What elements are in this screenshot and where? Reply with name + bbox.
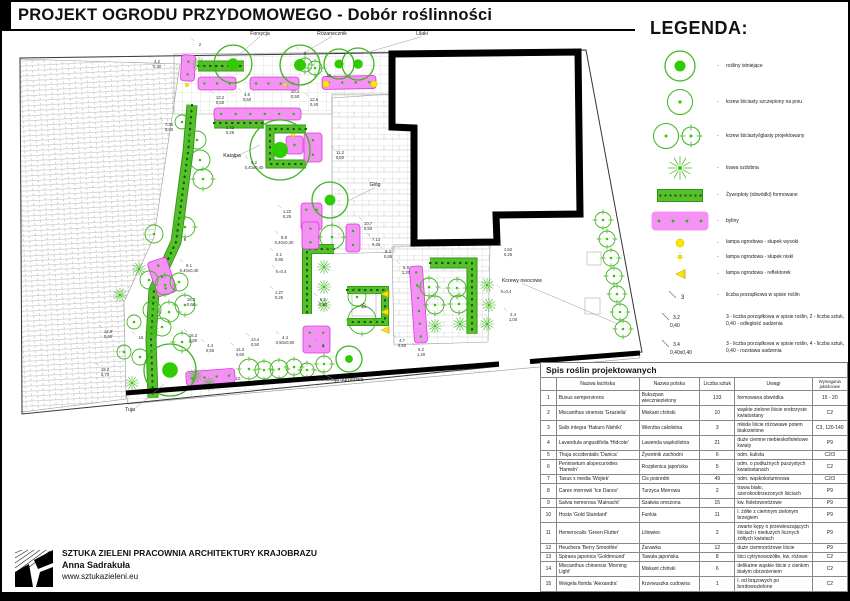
dim-tick [132, 331, 135, 334]
legend-item-label: lampa ogrodowa - reflektorek [726, 270, 791, 276]
cell-pol: Lawenda wąskolistna [639, 436, 699, 451]
plant-center-dot [622, 328, 625, 331]
dim-label: 0,40 [310, 102, 319, 107]
plant-center-dot [293, 366, 296, 369]
grass-center-dot [488, 304, 491, 307]
plant-center-dot [610, 257, 613, 260]
dim-label: 6 [184, 237, 187, 242]
cell-qty: 8 [700, 553, 735, 562]
table-row: 1Buxus sempervirensBukszpan wiecznieziel… [541, 391, 848, 406]
bed-dot [216, 82, 218, 84]
cell-req: C2 [812, 406, 847, 421]
cell-req: C2/3 [812, 451, 847, 460]
bed-dot [249, 113, 251, 115]
grass-center-dot [486, 284, 489, 287]
house-outline [392, 52, 580, 243]
dim-label: 1,20 [402, 270, 411, 275]
svg-text:3.4: 3.4 [673, 342, 680, 348]
cell-pol: Tawuła japońska [639, 553, 699, 562]
cell-lat: Salvia nemorosa 'Mainacht' [556, 499, 639, 508]
label-leader [522, 284, 618, 325]
cell-req: C2 [812, 460, 847, 475]
cell-lat: Buxus sempervirens [556, 391, 639, 406]
s-area-label: S [362, 303, 367, 310]
cell-num: 5 [541, 451, 557, 460]
dim-label: 0,60 [236, 352, 245, 357]
legend-dash: - [715, 99, 721, 105]
dim-label: 0,50x0,50 [276, 340, 295, 345]
cell-lat: Lavandula angustifolia 'Hidcote' [556, 436, 639, 451]
legend-panel: LEGENDA: -rośliny istniejące-krzew liści… [650, 18, 848, 361]
plant-center-dot [602, 219, 605, 222]
plant-center-dot [161, 326, 164, 329]
dim-tick [272, 265, 275, 268]
legend-item-label: krzew liściasty szczepiony na pniu [726, 99, 802, 105]
dim-tick [278, 205, 281, 208]
dim-label: 0,50 [336, 155, 345, 160]
hedge-symbol [650, 189, 710, 202]
boundary-gap [499, 362, 530, 364]
dim-label: 0,40x0,40 [245, 165, 264, 170]
cell-lat: Hosta 'Gold Standard' [556, 508, 639, 523]
dim-label: 0,50 [216, 100, 225, 105]
cell-uwagi: delikatne wąskie liście z cienkim białym… [735, 562, 812, 577]
bed-dot [312, 139, 314, 141]
grass-center-dot [434, 325, 437, 328]
dim-label: 1,20 [417, 352, 426, 357]
cell-qty: 6 [700, 562, 735, 577]
plant-center-dot [325, 195, 336, 206]
legend-item-lamp-high: -lampa ogrodowa - słupek wysoki [650, 235, 848, 250]
paved-square [585, 298, 600, 314]
plant-center-dot [616, 293, 619, 296]
legend-item-label: rośliny istniejące [726, 63, 763, 69]
bed-dot [203, 82, 205, 84]
cell-qty: 6 [700, 451, 735, 460]
svg-text:3.2: 3.2 [673, 315, 680, 321]
cell-uwagi: formowana obwódka [735, 391, 812, 406]
table-row: 12Heuchera 'Berry Smoothie'Żurawka12duże… [541, 544, 848, 553]
perennial-bed [302, 222, 319, 249]
grass-center-dot [323, 266, 326, 269]
cell-num: 4 [541, 436, 557, 451]
dim-tick [270, 248, 273, 251]
dim-label: 16 [327, 73, 332, 78]
dim-tick [180, 259, 183, 262]
dim-tick [245, 156, 248, 159]
plant-center-dot [168, 311, 171, 314]
cell-uwagi: wąskie zielone liście srebrzyste kwiatos… [735, 406, 812, 421]
dim-tick [314, 293, 317, 296]
cell-qty: 1 [700, 577, 735, 592]
cell-uwagi: duże ciemnoróżowe liście [735, 544, 812, 553]
cell-pol: Żurawka [639, 544, 699, 553]
cell-req: C3, 120-140 [812, 421, 847, 436]
cell-req: P9 [812, 523, 847, 544]
cell-req: 15 - 20 [812, 391, 847, 406]
table-row: 8Carex morrowii 'Ice Dance'Turzyca Morro… [541, 484, 848, 499]
dim-label: 0,60 [187, 302, 196, 307]
designer-name: Anna Sadrakuła [62, 560, 317, 570]
cell-qty: 12 [700, 544, 735, 553]
plant-center-dot [196, 139, 199, 142]
bed-dot [267, 82, 269, 84]
dim-label: 1,00 [509, 317, 518, 322]
plant-label: Głóg [370, 182, 381, 188]
cell-pol: Liliowiec [639, 523, 699, 544]
cell-lat: Thuja occidentalis 'Danica' [556, 451, 639, 460]
plant-center-dot [323, 363, 326, 366]
dim-label: 16 [139, 335, 144, 340]
plant-center-dot [164, 284, 167, 287]
dim-label: 10 [236, 376, 241, 381]
bed-dot [352, 230, 354, 232]
plant-center-dot [428, 286, 431, 289]
plant-center-dot [139, 356, 142, 359]
dim-tick [270, 286, 273, 289]
plant-table-body: 1Buxus sempervirensBukszpan wiecznieziel… [541, 391, 848, 601]
legend-item-lamp-low: -lampa ogrodowa - słupek niski [650, 250, 848, 264]
plant-center-dot [613, 275, 616, 278]
website-link[interactable]: www.sztukazieleni.eu [62, 572, 317, 581]
lamp-high [371, 81, 377, 87]
cell-req: C2 [812, 562, 847, 577]
plant-center-dot [434, 304, 437, 307]
dim-label: 0,70 [101, 372, 110, 377]
ref-count-symbol: 3.20,40 [650, 311, 710, 331]
table-row: 15Weigela florida 'Alexandra'Krzewuszka … [541, 577, 848, 592]
bed-dot [279, 82, 281, 84]
legend-item-perennials: -byliny [650, 207, 848, 235]
plant-label: Tuja [125, 407, 135, 413]
cell-uwagi: zwarte kępy o przewieszających liściach … [735, 523, 812, 544]
cell-qty: 49 [700, 475, 735, 484]
dim-tick [201, 339, 204, 342]
legend-item-label: krzew liściasty/iglasty projektowany [726, 133, 804, 139]
dim-tick [497, 285, 500, 288]
existing-plant-symbol [650, 48, 710, 84]
dim-label: 0,30 [153, 64, 162, 69]
dim-label: 0,50 [398, 343, 407, 348]
plant-center-dot [184, 226, 187, 229]
cell-lat: Hemerocalis 'Green Flutter' [556, 523, 639, 544]
legend-item-label: byliny [726, 218, 739, 224]
bed-dot [264, 113, 266, 115]
bed-dot [309, 228, 311, 230]
bed-dot [220, 113, 222, 115]
legend-item-existing-plant: -rośliny istniejące [650, 47, 848, 85]
cell-req: P9 [812, 508, 847, 523]
cell-lat: Pennisetum alopecuroides 'Hameln' [556, 460, 639, 475]
legend-item-lamp-spot: -lampa ogrodowa - reflektorek [650, 264, 848, 283]
cell-pol: Rozplenica japońska [639, 460, 699, 475]
plant-center-dot [162, 362, 178, 378]
lamp-high-symbol [650, 237, 710, 249]
legend-item-ref-spacing: 3.40,40x0,40-3 - liczba porządkowa w spi… [650, 334, 848, 361]
table-row: 4Lavandula angustifolia 'Hidcote'Lawenda… [541, 436, 848, 451]
cell-pol: Funkia [639, 508, 699, 523]
plant-center-dot [361, 319, 364, 322]
dim-tick [246, 333, 249, 336]
cell-num: 12 [541, 544, 557, 553]
cell-uwagi: liści cytrynowożółte, kw. różowe [735, 553, 812, 562]
cell-uwagi: odm. kulista [735, 451, 812, 460]
cell-uwagi: l. od brązowych po bordowozielone [735, 577, 812, 592]
paved-square [587, 252, 601, 265]
label-leader [240, 37, 260, 55]
perennial-bed [346, 224, 360, 252]
plant-table: Nazwa łacińskaNazwa polskaLiczba sztukUw… [540, 377, 848, 601]
dim-label: 0,90 [275, 257, 284, 262]
bottom-border-bar [2, 592, 848, 599]
bed-dot [309, 345, 311, 347]
dim-tick [276, 331, 279, 334]
cell-num: 13 [541, 553, 557, 562]
plant-center-dot [181, 341, 184, 344]
dim-label: 0,50 [364, 226, 373, 231]
cell-req: P9 [812, 499, 847, 508]
plant-center-dot [353, 59, 363, 69]
plant-label: Krzewy owocowe [502, 278, 542, 284]
perennial-bed [214, 108, 301, 120]
legend-dash: - [715, 165, 721, 171]
cell-pol: Krzewuszka cudowna [639, 577, 699, 592]
dim-label: 0,25 [275, 295, 284, 300]
plant-center-dot [331, 236, 334, 239]
bed-dot [305, 209, 307, 211]
perennials-symbol [650, 211, 710, 231]
plant-table-head: Nazwa łacińskaNazwa polskaLiczba sztukUw… [541, 378, 848, 391]
grafted-shrub-symbol [650, 87, 710, 117]
ref-number-symbol: 3 [650, 289, 710, 302]
plant-center-dot [153, 233, 156, 236]
bed-dot [278, 113, 280, 115]
legend-item-label: 3 - liczba porządkowa w spisie roślin, 2… [726, 314, 848, 327]
dim-tick [231, 343, 234, 346]
legend-item-proposed-shrub: -krzew liściasty/iglasty projektowany [650, 119, 848, 153]
grass-center-dot [119, 294, 122, 297]
cell-req: C2 [812, 553, 847, 562]
lamp-low [291, 133, 295, 137]
cell-num: 10 [541, 508, 557, 523]
plant-center-dot [606, 238, 609, 241]
bed-dot [255, 82, 257, 84]
plant-center-dot [199, 159, 202, 162]
legend-item-label: 3 - liczba porządkowa w spisie roślin, 4… [726, 341, 848, 354]
cell-num: 1 [541, 391, 557, 406]
cell-num: 15 [541, 577, 557, 592]
dim-label: 0,40 [372, 242, 381, 247]
plant-center-dot [345, 355, 353, 363]
cell-pol: Miskant chiński [639, 406, 699, 421]
cell-num: 11 [541, 523, 557, 544]
plant-label: Różanecznik [317, 31, 347, 37]
title-accent-bar [2, 2, 11, 29]
column-header-0 [541, 378, 557, 391]
grass-center-dot [486, 323, 489, 326]
cell-req: P9 [812, 484, 847, 499]
legend-item-ref-number: 3-liczba porządkowa w spisie roślin [650, 283, 848, 307]
cell-qty: 2 [700, 523, 735, 544]
dim-label: 0,80 [319, 302, 328, 307]
table-row: 2Miscanthus sinensis 'Graziella'Miskant … [541, 406, 848, 421]
cell-pol: Cis pośredni [639, 475, 699, 484]
bed-dot [293, 113, 295, 115]
cell-pol: Turzyca Morrowa [639, 484, 699, 499]
dim-label: 0,85 [384, 254, 393, 259]
cell-num: 6 [541, 460, 557, 475]
cell-qty: 10 [700, 406, 735, 421]
legend-item-label: lampa ogrodowa - słupek niski [726, 254, 793, 260]
cell-num: 7 [541, 475, 557, 484]
bed-dot [293, 144, 295, 146]
plant-center-dot [123, 351, 126, 354]
cell-lat: Carex morrowii 'Ice Dance' [556, 484, 639, 499]
dim-tick [504, 308, 507, 311]
legend-items: -rośliny istniejące-krzew liściasty szcz… [650, 47, 848, 361]
dim-label: 0,60 [104, 334, 113, 339]
cell-num: 2 [541, 406, 557, 421]
lamp-low-symbol [650, 251, 710, 263]
table-row: 5Thuja occidentalis 'Danica'Żywotnik zac… [541, 451, 848, 460]
legend-item-ornamental-grass: -trawa ozdobna [650, 153, 848, 183]
dim-label: 0,50 [206, 348, 215, 353]
column-header-4: Uwagi [735, 378, 812, 391]
plant-center-dot [272, 142, 288, 158]
column-header-3: Liczba sztuk [700, 378, 735, 391]
svg-text:0,40x0,40: 0,40x0,40 [670, 350, 692, 356]
table-row: 13Spiraea japonica 'Goldmound'Tawuła jap… [541, 553, 848, 562]
cell-lat: Salix integra 'Hakuro Nishiki' [556, 421, 639, 436]
plant-center-dot [148, 279, 151, 282]
company-name: SZTUKA ZIELENI PRACOWNIA ARCHITEKTURY KR… [62, 548, 317, 558]
proposed-shrub-symbol [650, 121, 710, 151]
perennial-bed [180, 55, 195, 82]
legend-dash: - [715, 254, 721, 260]
table-row: 11Hemerocalis 'Green Flutter'Liliowiec2z… [541, 523, 848, 544]
table-header-row: Nazwa łacińskaNazwa polskaLiczba sztukUw… [541, 378, 848, 391]
bed-dot [352, 244, 354, 246]
cell-lat: Miscanthus chinensis 'Morning Light' [556, 562, 639, 577]
cell-uwagi: odm. wąskokolumnowa [735, 475, 812, 484]
dim-label: h=0,4 [501, 289, 512, 294]
plant-center-dot [181, 121, 184, 124]
perennial-bed [303, 326, 330, 353]
lamp-spot [381, 327, 388, 333]
cell-uwagi: młode liście różowawe potem białozielone [735, 421, 812, 436]
cell-num: 3 [541, 421, 557, 436]
plant-center-dot [356, 296, 359, 299]
page-title: PROJEKT OGRODU PRZYDOMOWEGO - Dobór rośl… [18, 6, 492, 25]
cell-lat: Weigela florida 'Alexandra' [556, 577, 639, 592]
cell-uwagi: trawa biało, szerokoobrzeżonych liściach [735, 484, 812, 499]
column-header-1: Nazwa łacińska [556, 378, 639, 391]
bed-dot [235, 113, 237, 115]
bed-dot [312, 154, 314, 156]
grass-center-dot [151, 331, 154, 334]
cell-qty: 11 [700, 508, 735, 523]
legend-item-label: trawa ozdobna [726, 165, 759, 171]
cell-lat: Spiraea japonica 'Goldmound' [556, 553, 639, 562]
dim-tick [275, 231, 278, 234]
dim-tick [296, 47, 299, 50]
plant-center-dot [458, 303, 461, 306]
plant-table-panel: Spis roślin projektowanych Nazwa łacińsk… [540, 362, 848, 601]
legend-item-hedge: -Żywopłoty (obwódki) formowane [650, 183, 848, 207]
cell-lat: Miscanthus sinensis 'Graziella' [556, 406, 639, 421]
legend-item-ref-count: 3.20,40-3 - liczba porządkowa w spisie r… [650, 307, 848, 334]
table-row: 9Salvia nemorosa 'Mainacht'Szałwia omszo… [541, 499, 848, 508]
cell-req: P9 [812, 436, 847, 451]
plant-center-dot [304, 64, 307, 67]
dim-label: 0,90 [189, 338, 198, 343]
ornamental-grass-symbol [650, 154, 710, 182]
dim-label: 0,50 [291, 94, 300, 99]
cell-uwagi: duże ciemne niebieskofioletowe kwiaty [735, 436, 812, 451]
dim-label: 0,40 [165, 127, 174, 132]
grass-center-dot [131, 382, 134, 385]
table-row: 3Salix integra 'Hakuro Nishiki'Wierzba c… [541, 421, 848, 436]
footer: SZTUKA ZIELENI PRACOWNIA ARCHITEKTURY KR… [14, 548, 317, 588]
lamp-high [323, 81, 329, 87]
plant-table-title: Spis roślin projektowanych [540, 362, 848, 377]
cell-req: C2/3 [812, 475, 847, 484]
plant-center-dot [248, 368, 251, 371]
table-row: 6Pennisetum alopecuroides 'Hameln'Rozple… [541, 460, 848, 475]
plant-center-dot [619, 311, 622, 314]
legend-item-label: liczba porządkowa w spisie roślin [726, 292, 800, 298]
plant-center-dot [133, 321, 136, 324]
dim-label: 0,25 [504, 252, 513, 257]
legend-item-label: lampa ogrodowa - słupek wysoki [726, 239, 798, 245]
plant-label: Hortensja ogrodowa [317, 377, 364, 383]
grass-center-dot [194, 375, 197, 378]
cell-pol: Wierzba całolistna [639, 421, 699, 436]
cell-num: 14 [541, 562, 557, 577]
plant-center-dot [314, 67, 317, 70]
plant-center-dot [178, 281, 181, 284]
cell-qty: 133 [700, 391, 735, 406]
plant-label: Lilaki [416, 31, 428, 37]
cell-qty: 15 [700, 499, 735, 508]
dim-tick [191, 38, 194, 41]
grass-center-dot [138, 268, 141, 271]
cell-pol: Szałwia omszona [639, 499, 699, 508]
footer-text: SZTUKA ZIELENI PRACOWNIA ARCHITEKTURY KR… [62, 548, 317, 581]
dim-label: 2 [199, 42, 202, 47]
title-bar: PROJEKT OGRODU PRZYDOMOWEGO - Dobór rośl… [2, 2, 635, 31]
label-leader [302, 37, 332, 55]
plant-center-dot [202, 178, 205, 181]
cell-qty: 21 [700, 436, 735, 451]
cell-qty: 2 [700, 484, 735, 499]
dim-label: 0,25 [226, 130, 235, 135]
plant-center-dot [306, 369, 309, 372]
legend-dash: - [715, 218, 721, 224]
cell-pol: Żywotnik zachodni [639, 451, 699, 460]
table-row: 14Miscanthus chinensis 'Morning Light'Mi… [541, 562, 848, 577]
plant-center-dot [227, 58, 238, 69]
column-header-5: Wymagania jakościowe [812, 378, 847, 391]
legend-dash: - [715, 271, 721, 277]
cell-qty: 5 [700, 460, 735, 475]
plant-label: Forsycja [250, 31, 270, 37]
cell-uwagi: l. żółte z ciemnym zielonym brzegiem [735, 508, 812, 523]
company-logo [14, 548, 54, 588]
legend-title: LEGENDA: [650, 18, 848, 39]
plant-center-dot [456, 287, 459, 290]
cell-req: C2 [812, 577, 847, 592]
